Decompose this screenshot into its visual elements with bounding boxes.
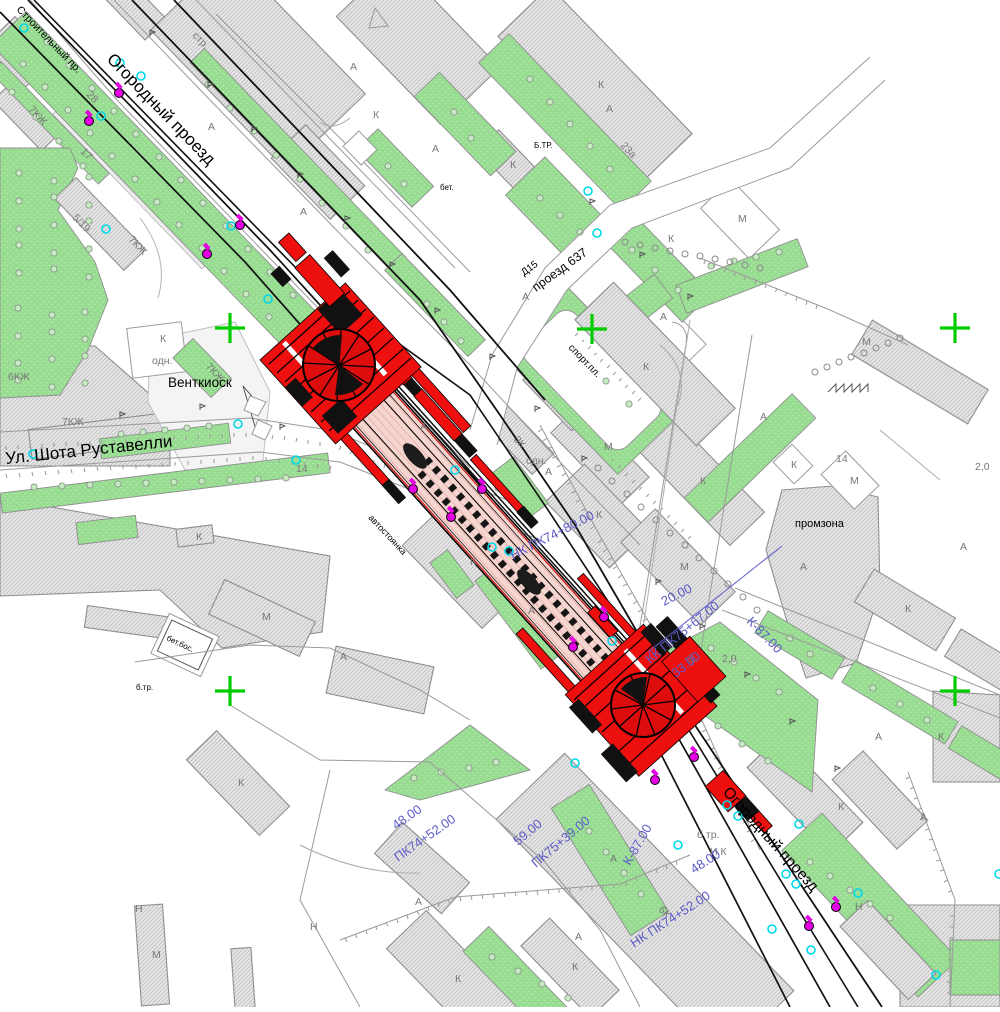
svg-text:А: А [350, 61, 357, 73]
svg-text:К: К [470, 556, 477, 568]
svg-text:Н: Н [855, 901, 863, 913]
svg-text:М: М [850, 475, 859, 487]
svg-text:К: К [905, 603, 912, 615]
svg-text:А: А [420, 421, 427, 433]
svg-text:К: К [160, 333, 167, 345]
svg-text:М: М [262, 611, 271, 623]
svg-text:К: К [238, 777, 245, 789]
svg-text:14: 14 [296, 463, 308, 475]
svg-text:А: А [208, 121, 215, 133]
svg-text:7КЖ: 7КЖ [62, 416, 84, 428]
svg-text:К: К [938, 731, 945, 743]
svg-text:А: А [610, 853, 617, 865]
svg-text:К: К [791, 459, 798, 471]
svg-text:А: А [660, 311, 667, 323]
svg-text:14: 14 [836, 453, 848, 465]
svg-text:К: К [572, 961, 579, 973]
svg-text:М: М [680, 561, 689, 573]
svg-text:одн.: одн. [526, 455, 546, 467]
svg-text:6КЖ: 6КЖ [8, 371, 30, 383]
svg-text:А: А [415, 896, 422, 908]
svg-text:одн.: одн. [152, 355, 172, 367]
svg-text:А: А [522, 291, 529, 303]
svg-text:А: А [340, 651, 347, 663]
svg-text:М: М [862, 336, 871, 348]
svg-text:К: К [700, 475, 707, 487]
svg-text:Б.ТР.: Б.ТР. [534, 141, 552, 150]
svg-text:А: А [528, 605, 535, 617]
svg-text:бет.: бет. [440, 183, 454, 192]
svg-text:А: А [432, 143, 439, 155]
svg-text:А: А [575, 931, 582, 943]
svg-text:К: К [598, 79, 605, 91]
svg-text:А: А [920, 811, 927, 823]
svg-text:А: А [545, 466, 552, 478]
svg-text:А: А [800, 561, 807, 573]
svg-text:промзона: промзона [795, 518, 845, 530]
svg-text:К: К [455, 973, 462, 985]
svg-text:К: К [373, 109, 380, 121]
svg-text:б.тр.: б.тр. [697, 829, 720, 841]
svg-text:Н: Н [135, 903, 143, 915]
svg-text:А: А [760, 411, 767, 423]
svg-text:К: К [668, 233, 675, 245]
svg-text:А: А [606, 103, 613, 115]
svg-text:А: А [300, 206, 307, 218]
svg-text:К: К [838, 801, 845, 813]
svg-text:2,0: 2,0 [975, 461, 990, 473]
svg-text:К: К [196, 531, 203, 543]
svg-text:М: М [738, 213, 747, 225]
svg-text:К: К [596, 509, 603, 521]
svg-text:М: М [152, 949, 161, 961]
svg-text:б.тр.: б.тр. [136, 683, 153, 692]
svg-text:К: К [643, 361, 650, 373]
svg-text:К: К [510, 159, 517, 171]
svg-text:А: А [960, 541, 967, 553]
svg-text:М: М [604, 441, 613, 453]
svg-text:2,0: 2,0 [722, 653, 737, 665]
svg-text:Н: Н [310, 921, 318, 933]
svg-text:А: А [875, 731, 882, 743]
